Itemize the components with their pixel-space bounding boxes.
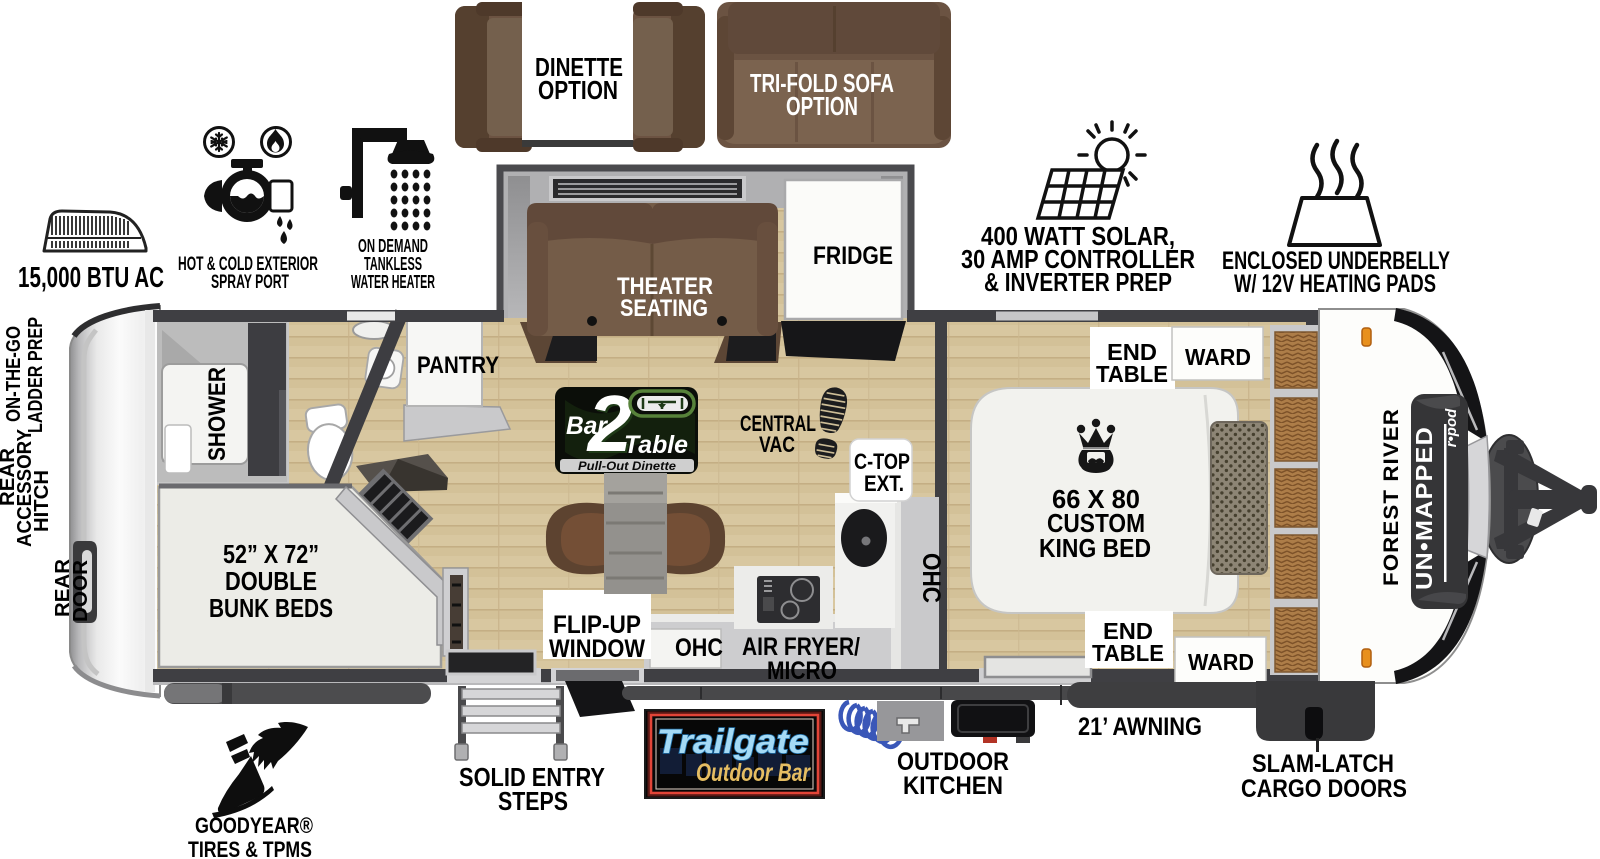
svg-text:SHOWER: SHOWER [204, 367, 231, 461]
svg-text:Pull-Out Dinette: Pull-Out Dinette [578, 459, 676, 473]
svg-text:15,000 BTU AC: 15,000 BTU AC [18, 262, 164, 294]
svg-text:21’ AWNING: 21’ AWNING [1078, 713, 1202, 741]
svg-text:TANKLESS: TANKLESS [364, 254, 422, 274]
svg-text:SEATING: SEATING [620, 295, 708, 322]
svg-text:WARD: WARD [1188, 649, 1254, 675]
svg-text:WARD: WARD [1185, 344, 1251, 370]
svg-text:MICRO: MICRO [767, 657, 837, 685]
svg-text:WATER HEATER: WATER HEATER [351, 272, 435, 292]
svg-text:HITCH: HITCH [31, 470, 53, 532]
svg-text:EXT.: EXT. [864, 471, 904, 496]
svg-text:TIRES & TPMS: TIRES & TPMS [188, 837, 312, 859]
svg-text:TABLE: TABLE [1096, 361, 1168, 387]
svg-text:r•pod: r•pod [1443, 408, 1460, 447]
svg-text:UN•MAPPED: UN•MAPPED [1411, 426, 1437, 590]
svg-text:ON DEMAND: ON DEMAND [358, 236, 428, 256]
svg-text:VAC: VAC [759, 432, 795, 457]
svg-text:BUNK BEDS: BUNK BEDS [209, 593, 333, 623]
svg-text:DOUBLE: DOUBLE [225, 566, 317, 596]
svg-text:WINDOW: WINDOW [549, 635, 645, 663]
svg-text:GOODYEAR®: GOODYEAR® [195, 813, 313, 838]
svg-text:FRIDGE: FRIDGE [813, 242, 893, 270]
svg-text:Trailgate: Trailgate [657, 723, 809, 761]
svg-text:OPTION: OPTION [538, 75, 618, 105]
svg-text:Bar: Bar [566, 412, 608, 440]
svg-text:Outdoor Bar: Outdoor Bar [696, 759, 811, 787]
svg-text:Table: Table [624, 431, 688, 459]
svg-text:DOOR: DOOR [70, 559, 92, 622]
svg-text:TABLE: TABLE [1092, 640, 1164, 666]
svg-text:SPRAY PORT: SPRAY PORT [211, 272, 289, 293]
svg-text:SLAM-LATCH: SLAM-LATCH [1252, 750, 1394, 778]
svg-text:OPTION: OPTION [786, 91, 858, 121]
svg-text:OHC: OHC [675, 634, 723, 662]
svg-text:& INVERTER PREP: & INVERTER PREP [984, 267, 1172, 297]
svg-text:KITCHEN: KITCHEN [903, 772, 1003, 800]
svg-text:W/ 12V HEATING PADS: W/ 12V HEATING PADS [1234, 270, 1436, 298]
svg-text:CARGO DOORS: CARGO DOORS [1241, 775, 1407, 803]
svg-text:FOREST RIVER: FOREST RIVER [1380, 408, 1403, 586]
svg-text:OHC: OHC [917, 553, 945, 603]
svg-text:ON-THE-GO: ON-THE-GO [3, 326, 25, 422]
svg-text:LADDER PREP: LADDER PREP [25, 317, 47, 433]
svg-text:PANTRY: PANTRY [417, 352, 499, 379]
svg-text:52” X 72”: 52” X 72” [223, 539, 319, 569]
svg-text:STEPS: STEPS [498, 786, 568, 816]
svg-text:KING BED: KING BED [1039, 533, 1151, 563]
